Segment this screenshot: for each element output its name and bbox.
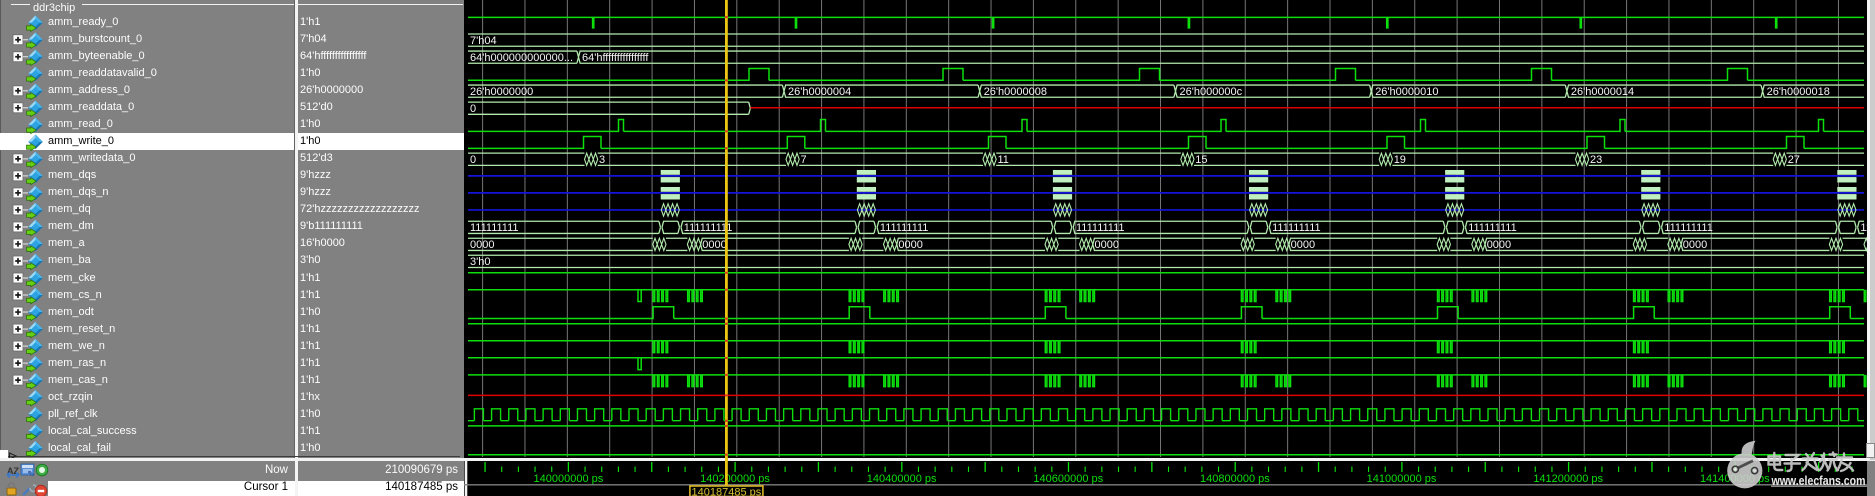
svg-text:3'h0: 3'h0 [470,256,490,268]
svg-text:23: 23 [1590,154,1602,166]
svg-text:140000000 ps: 140000000 ps [534,473,604,485]
svg-text:111111111: 111111111 [1076,222,1125,234]
svg-text:26'h0000014: 26'h0000014 [1571,86,1634,98]
svg-text:141200000 ps: 141200000 ps [1533,473,1603,485]
svg-text:141000000 ps: 141000000 ps [1367,473,1437,485]
svg-text:0000: 0000 [702,239,726,251]
svg-text:7'h04: 7'h04 [470,35,497,47]
svg-text:64'h000000000000...: 64'h000000000000... [470,52,573,64]
svg-text:26'h0000018: 26'h0000018 [1767,86,1830,98]
svg-text:0: 0 [470,154,476,166]
svg-text:111111111: 111111111 [1664,222,1713,234]
svg-text:26'h000000c: 26'h000000c [1180,86,1243,98]
svg-text:26'h0000010: 26'h0000010 [1375,86,1438,98]
svg-text:0000: 0000 [470,239,494,251]
svg-text:0000: 0000 [1487,239,1511,251]
svg-text:0: 0 [470,103,476,115]
svg-text:11: 11 [998,154,1009,166]
svg-text:64'hffffffffffffffff: 64'hffffffffffffffff [582,52,649,64]
svg-text:0000: 0000 [898,239,922,251]
svg-text:140200000 ps: 140200000 ps [700,473,770,485]
svg-text:15: 15 [1195,154,1207,166]
svg-text:0000: 0000 [1683,239,1707,251]
svg-text:140800000 ps: 140800000 ps [1200,473,1270,485]
svg-text:7: 7 [801,154,807,166]
svg-text:19: 19 [1394,154,1406,166]
svg-text:111111111: 111111111 [1468,222,1517,234]
svg-text:3: 3 [599,154,605,166]
svg-text:111111111: 111111111 [470,222,519,234]
svg-text:26'h0000008: 26'h0000008 [984,86,1047,98]
svg-text:111111111: 111111111 [1272,222,1321,234]
svg-text:140187485 ps: 140187485 ps [692,486,762,496]
svg-text:111111111: 111111111 [880,222,929,234]
svg-text:0000: 0000 [1291,239,1315,251]
svg-text:26'h0000004: 26'h0000004 [788,86,851,98]
svg-text:26'h0000000: 26'h0000000 [470,86,533,98]
svg-text:140600000 ps: 140600000 ps [1033,473,1103,485]
svg-text:140400000 ps: 140400000 ps [867,473,937,485]
svg-text:www.elecfans.com: www.elecfans.com [1771,473,1866,488]
svg-text:27: 27 [1788,154,1800,166]
svg-text:0000: 0000 [1095,239,1119,251]
